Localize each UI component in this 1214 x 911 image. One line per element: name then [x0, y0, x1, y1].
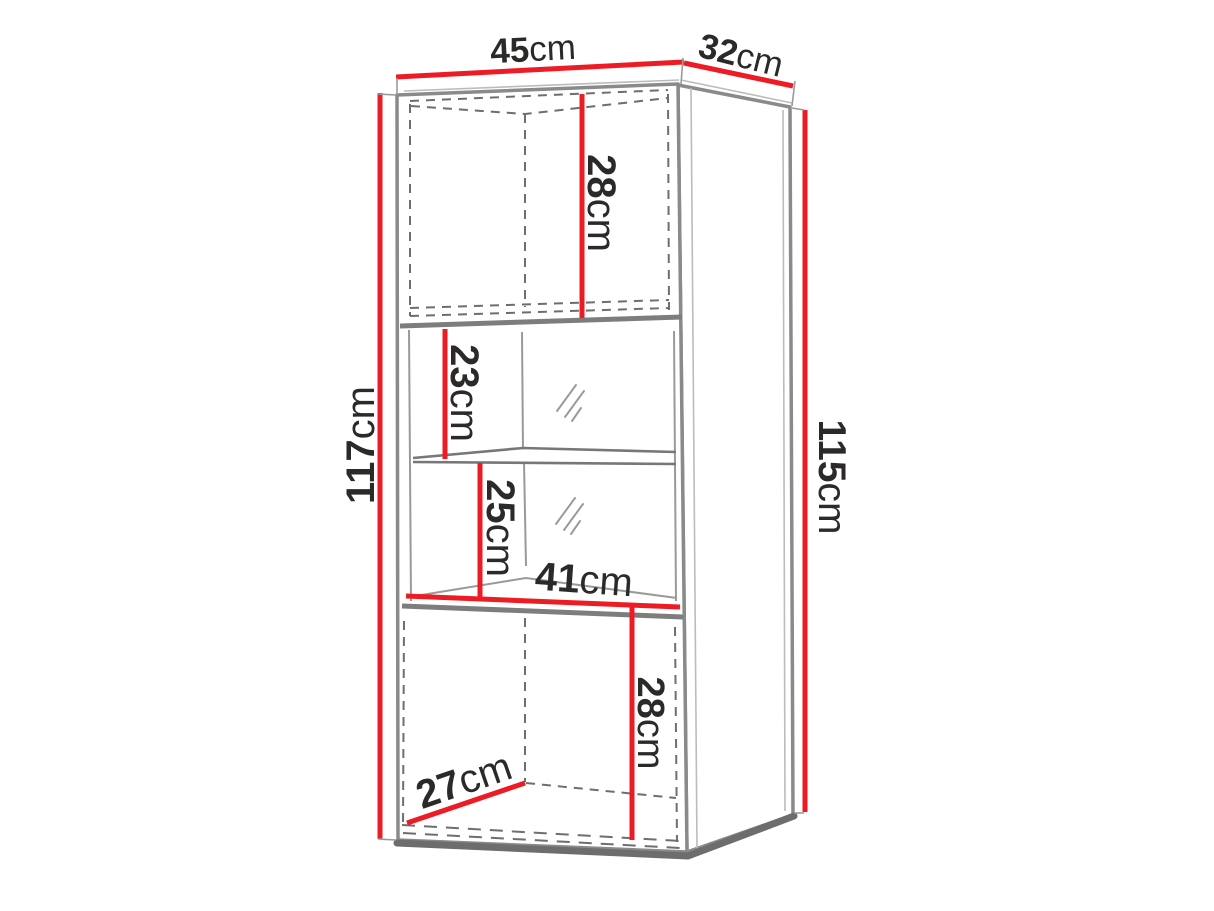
- middle-back-corner-upper: [522, 332, 523, 449]
- dim-label-top-width: 45cm: [489, 27, 577, 70]
- dim-label-inner-width: 41cm: [534, 555, 635, 606]
- dim-label-upper-inner-height: 28cm: [579, 154, 623, 252]
- dim-label-lower-shelf-height: 25cm: [478, 479, 522, 577]
- dim-label-upper-shelf-height: 23cm: [442, 344, 486, 442]
- dim-label-right-height: 115cm: [811, 420, 854, 535]
- cabinet-diagram-canvas: 45cm 32cm 117cm 115cm 28cm 23cm 25cm 41c…: [0, 0, 1214, 911]
- dim-label-lower-inner-height: 28cm: [629, 677, 671, 770]
- furniture-dimension-diagram: 45cm 32cm 117cm 115cm 28cm 23cm 25cm 41c…: [0, 0, 1214, 911]
- dim-label-left-height: 117cm: [339, 386, 383, 504]
- cabinet-right-side-panel: [678, 85, 793, 852]
